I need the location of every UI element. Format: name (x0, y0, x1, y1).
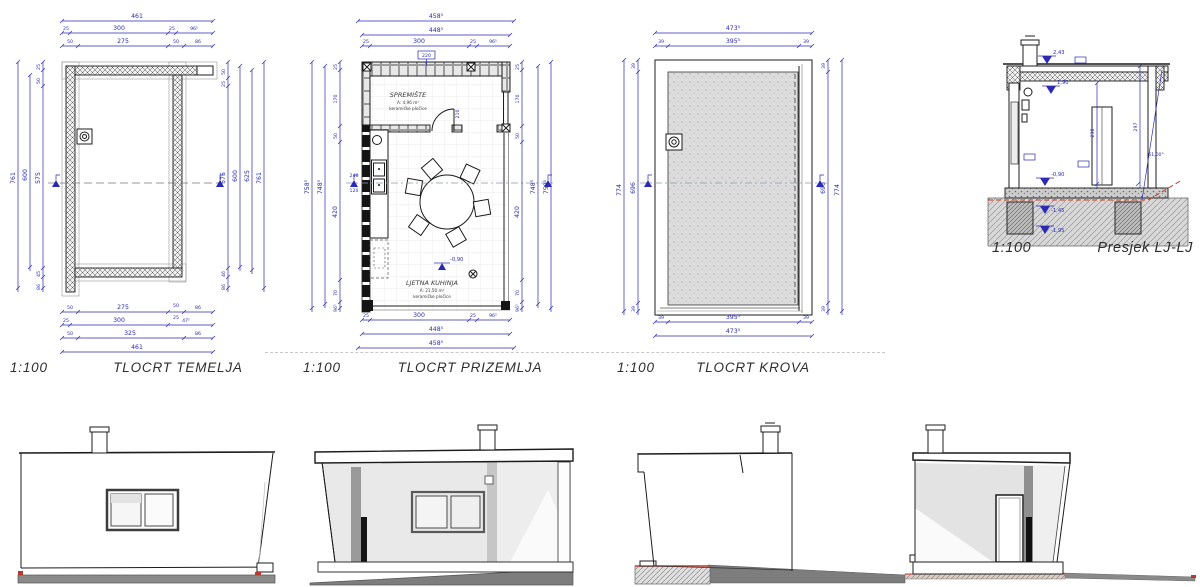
ground (635, 561, 905, 584)
dimension-lines-bottom: 39 395⁵ 39 473⁵ (653, 314, 814, 338)
dim-label: 25 (221, 81, 227, 87)
dim-label: 420 (332, 206, 339, 218)
dim-label: 86 (36, 284, 42, 290)
dimension-lines-left: 758⁵ 748⁵ 25 170 50 420 70 96⁵ (304, 60, 342, 312)
dim-label: 25 (333, 64, 339, 70)
dim-label: 696 (820, 182, 827, 194)
dim-label: 39 (631, 306, 637, 312)
dim-label: 600 (22, 169, 29, 181)
dim-label: 300 (113, 317, 125, 324)
dim-label: 50 (173, 39, 179, 45)
dim-label: 774 (834, 184, 841, 196)
footing (1007, 202, 1033, 234)
dim-label: 39 (658, 39, 664, 45)
footing (1115, 202, 1141, 234)
dim-label: 50 (333, 133, 339, 139)
scale-label: 1:100 (303, 360, 341, 375)
dim-label: 297 (1133, 123, 1139, 132)
dim-label: 50 (67, 305, 73, 311)
dim-label: 300 (113, 25, 125, 32)
building-outline (638, 453, 792, 571)
dim-label: 25 (363, 313, 369, 319)
dim-label: 275 (117, 38, 129, 45)
dim-label: 25 (363, 39, 369, 45)
room-name: SPREMIŠTE (390, 90, 427, 99)
dim-label: 420 (514, 206, 521, 218)
chimney (761, 423, 780, 453)
elevation-3 (630, 420, 920, 587)
dim-label: 46 (221, 271, 227, 277)
dim-label: 325 (124, 330, 136, 337)
door (996, 495, 1023, 562)
dim-label: 25 (169, 26, 175, 32)
room-area: A: 21,50 m² (420, 288, 445, 293)
svg-text:220: 220 (422, 53, 431, 59)
dim-label: 170 (515, 95, 521, 104)
dim-label: 458⁵ (429, 13, 444, 20)
section-walls (1007, 66, 1164, 188)
level-label: 1,90 (1057, 80, 1069, 86)
dim-label: 96⁵ (489, 39, 497, 45)
dim-label: 600 (232, 170, 239, 182)
dim-label: 25 (173, 315, 179, 321)
chimney (90, 427, 109, 453)
dim-label: 86 (195, 331, 201, 337)
dim-label: 70 (333, 290, 339, 296)
chimney (1021, 36, 1039, 66)
elevation-4 (905, 420, 1200, 587)
dim-label: 696 (630, 182, 637, 194)
drawing-sheet: 461 25 300 25 96⁵ 50 275 50 86 50 275 50… (0, 0, 1200, 587)
scale-label: 1:100 (10, 360, 48, 375)
roof-plan-drawing: 473⁵ 39 395⁵ 39 39 395⁵ 39 473⁵ 774 39 6… (600, 0, 900, 395)
dim-label: 473⁵ (726, 328, 741, 335)
dim-label: 50 (221, 69, 227, 75)
plan-title: TLOCRT KROVA (696, 360, 810, 375)
dim-label: 461 (131, 344, 143, 351)
dim-label: 50 (67, 39, 73, 45)
chimney (478, 425, 497, 450)
dim-label: 39 (803, 315, 809, 321)
ground-floor-plan-drawing: 210 SPREMIŠTE A: 4,96 m² keramičke ploči… (300, 0, 600, 395)
dim-label: 748⁵ (530, 179, 537, 194)
window (412, 492, 484, 532)
dim-label: 39 (803, 39, 809, 45)
window (107, 490, 178, 530)
dim-label: 275 (117, 304, 129, 311)
dim-label: 96⁵ (489, 313, 497, 319)
dim-label: 758⁵ (543, 179, 550, 194)
elevation-2 (305, 420, 585, 587)
dim-label: 120 (350, 188, 359, 194)
dim-label: 230 (1090, 129, 1096, 138)
room-name: LJETNA KUHINJA (406, 279, 458, 287)
level-label: -0,90 (450, 257, 463, 263)
dimension-lines-right: 50 25 575 46 86 600 625 761 (220, 60, 266, 292)
room-floor: keramičke pločice (413, 294, 451, 299)
dim-label: 50 (515, 133, 521, 139)
scale-label: 1:100 (992, 240, 1031, 256)
dim-label: 473⁵ (726, 25, 741, 32)
dim-label: 625 (244, 170, 251, 182)
foundation-outline (62, 62, 217, 296)
dim-label: 86 (195, 305, 201, 311)
dim-label: 70 (515, 290, 521, 296)
dim-label: 25 (515, 64, 521, 70)
dim-label: 45 (36, 271, 42, 277)
dim-label: 448⁵ (429, 326, 444, 333)
dim-label: 395⁵ (726, 38, 741, 45)
dim-label: 39 (658, 315, 664, 321)
dim-label: 461 (131, 13, 143, 20)
dim-label: 448⁵ (429, 27, 444, 34)
dimension-lines-left: 774 39 696 39 (616, 58, 640, 315)
dimension-lines-right: 39 696 39 774 (820, 58, 844, 315)
dim-label: 39 (821, 306, 827, 312)
base-platform (913, 562, 1063, 574)
level-label: -1,95 (1051, 228, 1064, 234)
strip-footings (66, 66, 213, 292)
room-floor: keramičke pločice (389, 106, 427, 111)
dimension-lines-top: 473⁵ 39 395⁵ 39 (653, 25, 814, 48)
dim-label: 758⁵ (304, 179, 311, 194)
dim-label: 47⁵ (182, 318, 190, 324)
dim-label: 25 (470, 39, 476, 45)
roof-slab (1003, 64, 1170, 81)
level-label: -0,90 (1051, 172, 1064, 178)
dim-label: 25 (63, 26, 69, 32)
plan-title: TLOCRT PRIZEMLJA (398, 360, 543, 375)
dimension-lines-left: 761 600 25 50 575 45 86 (10, 60, 45, 292)
dimension-lines-bottom: 50 275 50 25 86 25 300 47⁵ 50 325 86 461 (60, 303, 215, 354)
roof-outline (655, 60, 812, 315)
angle-label: 61,00° (1148, 152, 1164, 158)
base-platform (318, 562, 573, 572)
dim-label: 575 (35, 172, 42, 184)
plan-title: TLOCRT TEMELJA (113, 360, 242, 375)
dim-label: 39 (631, 63, 637, 69)
level-label: 2,43 (1053, 50, 1065, 56)
section-drawing: 2,43 1,90 -0,90 -1,45 -1,95 230 297 61,0… (930, 30, 1200, 300)
dim-label: 170 (333, 95, 339, 104)
dim-label: 96⁵ (190, 26, 198, 32)
dimension-lines-bottom: 25 300 25 96⁵ 448⁵ 458⁵ (356, 312, 516, 350)
dim-label: 300 (413, 312, 425, 319)
chimney (666, 134, 682, 150)
dim-label: 39 (821, 63, 827, 69)
dimension-lines-right: 25 170 50 420 70 96⁵ 748⁵ 758⁵ (514, 60, 553, 312)
level-label: -1,45 (1051, 208, 1064, 214)
dim-label: 458⁵ (429, 340, 444, 347)
foundation-plan-drawing: 461 25 300 25 96⁵ 50 275 50 86 50 275 50… (0, 0, 300, 395)
dim-label: 86 (195, 39, 201, 45)
dim-label: 25 (63, 318, 69, 324)
dim-label: 50 (36, 78, 42, 84)
chimney (926, 425, 945, 453)
dim-label: 86 (221, 284, 227, 290)
dim-label: 240 (350, 173, 359, 179)
dim-label: 25 (36, 64, 42, 70)
section-title: Presjek LJ-LJ (1097, 240, 1193, 256)
dim-label: 575 (220, 172, 227, 184)
elevation-1 (15, 420, 285, 587)
dim-label: 210 (455, 110, 461, 119)
dim-label: 761 (10, 172, 17, 184)
drain-box (77, 129, 92, 144)
dim-label: 50 (67, 331, 73, 337)
dim-label: 774 (616, 184, 623, 196)
dim-label: 748⁵ (317, 179, 324, 194)
dim-label: 50 (173, 303, 179, 309)
building (910, 453, 1070, 562)
dimension-lines-top: 461 25 300 25 96⁵ 50 275 50 86 (60, 13, 215, 48)
dimension-lines-top: 458⁵ 448⁵ 25 300 25 96⁵ (356, 13, 516, 48)
scale-label: 1:100 (617, 360, 655, 375)
room-area: A: 4,96 m² (397, 100, 419, 105)
separator-dashed-line (265, 352, 885, 353)
ground-hatch (988, 198, 1188, 246)
dim-label: 300 (413, 38, 425, 45)
dim-label: 96⁵ (515, 304, 521, 312)
ground (18, 563, 275, 583)
dim-label: 96⁵ (333, 304, 339, 312)
dim-label: 761 (256, 172, 263, 184)
dim-label: 395⁵ (726, 314, 741, 321)
dim-label: 25 (470, 313, 476, 319)
